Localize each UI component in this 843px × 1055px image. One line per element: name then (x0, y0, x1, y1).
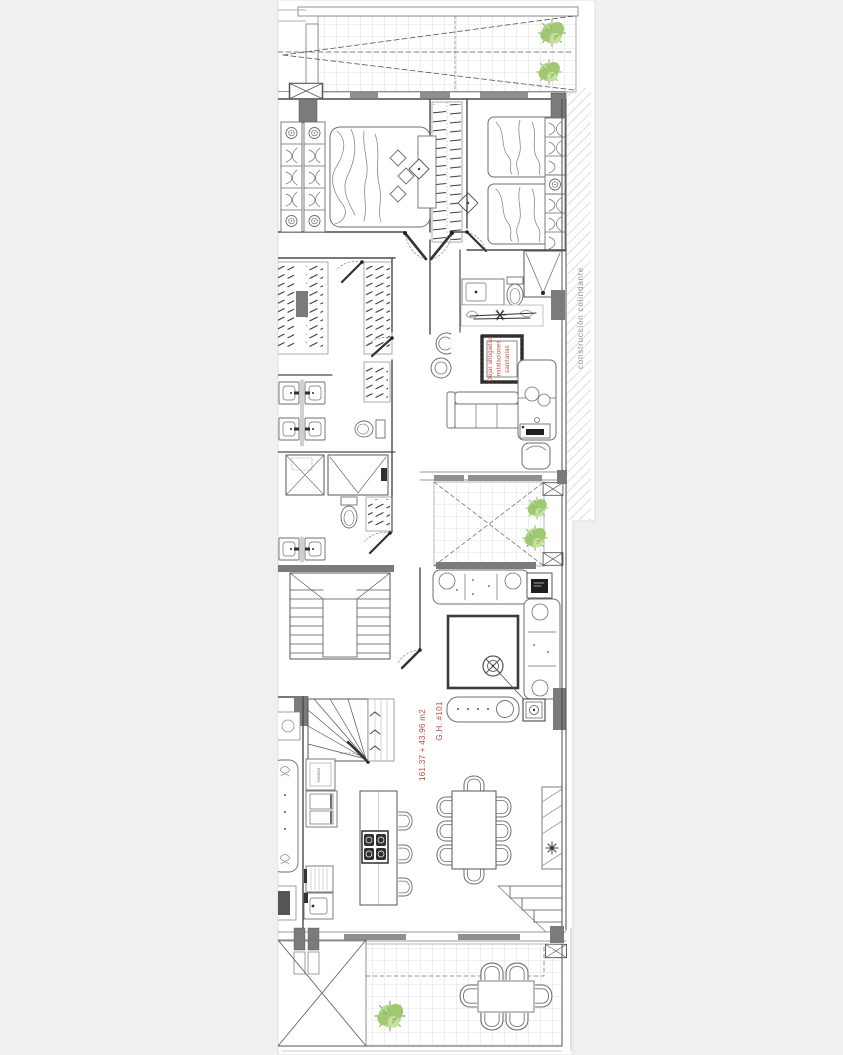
sink (305, 382, 325, 404)
chair-icon (496, 845, 511, 865)
outdoor-grill (272, 886, 296, 920)
side-table (276, 712, 300, 740)
structural-column-icon (299, 99, 317, 123)
chair-icon (481, 1013, 503, 1030)
post (308, 952, 319, 974)
buffet-cabinet (542, 787, 562, 869)
plant-icon (523, 526, 548, 551)
plumbing-shaft: Dejar ahogadas instalaciones sanitarias (482, 336, 522, 382)
chair-icon (496, 821, 511, 841)
sofa-right (524, 599, 560, 699)
lounge-chair (436, 333, 451, 354)
bar-stool (399, 812, 413, 830)
terrace-grid-floor (318, 16, 576, 92)
outdoor-table (478, 981, 534, 1012)
appliance-label: Hornos (316, 767, 321, 782)
column-marker-icon (543, 553, 563, 566)
window-sill (468, 475, 542, 481)
kitchen-island (360, 791, 397, 905)
shaft-note-line1: Dejar ahogadas (488, 336, 494, 381)
shower-box (328, 455, 388, 495)
shaft-note-line2: instalaciones (497, 340, 503, 377)
sliding-door (458, 934, 520, 940)
dining-table (452, 791, 496, 869)
chair-icon (437, 845, 452, 865)
accent-chair (522, 443, 550, 469)
bar-stool (399, 845, 413, 863)
structural-column-icon (308, 928, 319, 950)
chair-icon (464, 776, 484, 791)
chair-icon (437, 821, 452, 841)
structural-column-icon (551, 93, 566, 120)
chair-icon (506, 1013, 528, 1030)
unit-area: 161.37 + 43.96 m2 (418, 709, 427, 781)
sink-vanity (462, 279, 504, 305)
window-sill (434, 475, 464, 481)
sofa-top (433, 570, 529, 604)
refrigerator (304, 866, 333, 892)
unit-name: G.H. #101 (435, 701, 444, 740)
plant-icon (375, 1001, 405, 1031)
toilet (355, 420, 385, 438)
structural-column-icon (551, 290, 565, 320)
plant-icon (537, 60, 562, 85)
stair-main (290, 573, 390, 659)
chair-icon (535, 985, 552, 1007)
column-marker-icon (290, 83, 323, 98)
toilet (507, 277, 523, 306)
hanger-rack-icon (277, 266, 294, 350)
chair-icon (506, 963, 528, 980)
toilet (341, 497, 357, 528)
sink (279, 538, 299, 560)
lounge-chair (431, 358, 451, 378)
floor-plan-drawing: construcción colindante (0, 0, 843, 1055)
shaft-note-line3: sanitarias (505, 345, 511, 373)
pantry-shelves (368, 699, 394, 761)
column-marker-icon (543, 483, 563, 496)
sink (305, 418, 325, 440)
bench-planters (272, 760, 298, 872)
bench-ottoman (447, 697, 519, 722)
hanger-rack-icon (366, 364, 388, 400)
structural-column-icon (553, 688, 566, 730)
property-boundary: construcción colindante (562, 88, 591, 520)
chair-icon (464, 869, 484, 884)
window-sill (350, 92, 378, 98)
sink (279, 418, 299, 440)
shower-box (286, 455, 324, 495)
tv-niche (527, 573, 552, 598)
terrace-parapet (298, 7, 578, 16)
sliding-door (344, 934, 406, 940)
bar-stool (399, 878, 413, 896)
wall-band (436, 562, 536, 569)
floor-plan-page: construcción colindante (0, 0, 843, 1055)
kitchen-sink (304, 893, 333, 919)
structural-column-icon (557, 470, 567, 484)
structural-column-icon (550, 926, 564, 943)
chair-icon (481, 963, 503, 980)
chair-icon (496, 797, 511, 817)
wall-band (278, 565, 394, 572)
sink (279, 382, 299, 404)
chair-icon (460, 985, 477, 1007)
sink (305, 538, 325, 560)
structural-column-icon (294, 928, 305, 950)
planter-ledge (461, 305, 543, 326)
master-bed (330, 127, 430, 227)
window-sill (480, 92, 528, 98)
boundary-label: construcción colindante (576, 267, 585, 369)
oven-column: Hornos (306, 759, 337, 827)
window-sill (420, 92, 450, 98)
plant-icon (526, 497, 548, 519)
structural-column-icon (296, 291, 308, 317)
hanger-rack-icon (306, 266, 323, 350)
chair-icon (437, 797, 452, 817)
roof-terrace (278, 7, 578, 92)
hanger-rack-icon (368, 499, 390, 529)
floor-drain (523, 699, 545, 721)
plant-icon (538, 19, 565, 46)
